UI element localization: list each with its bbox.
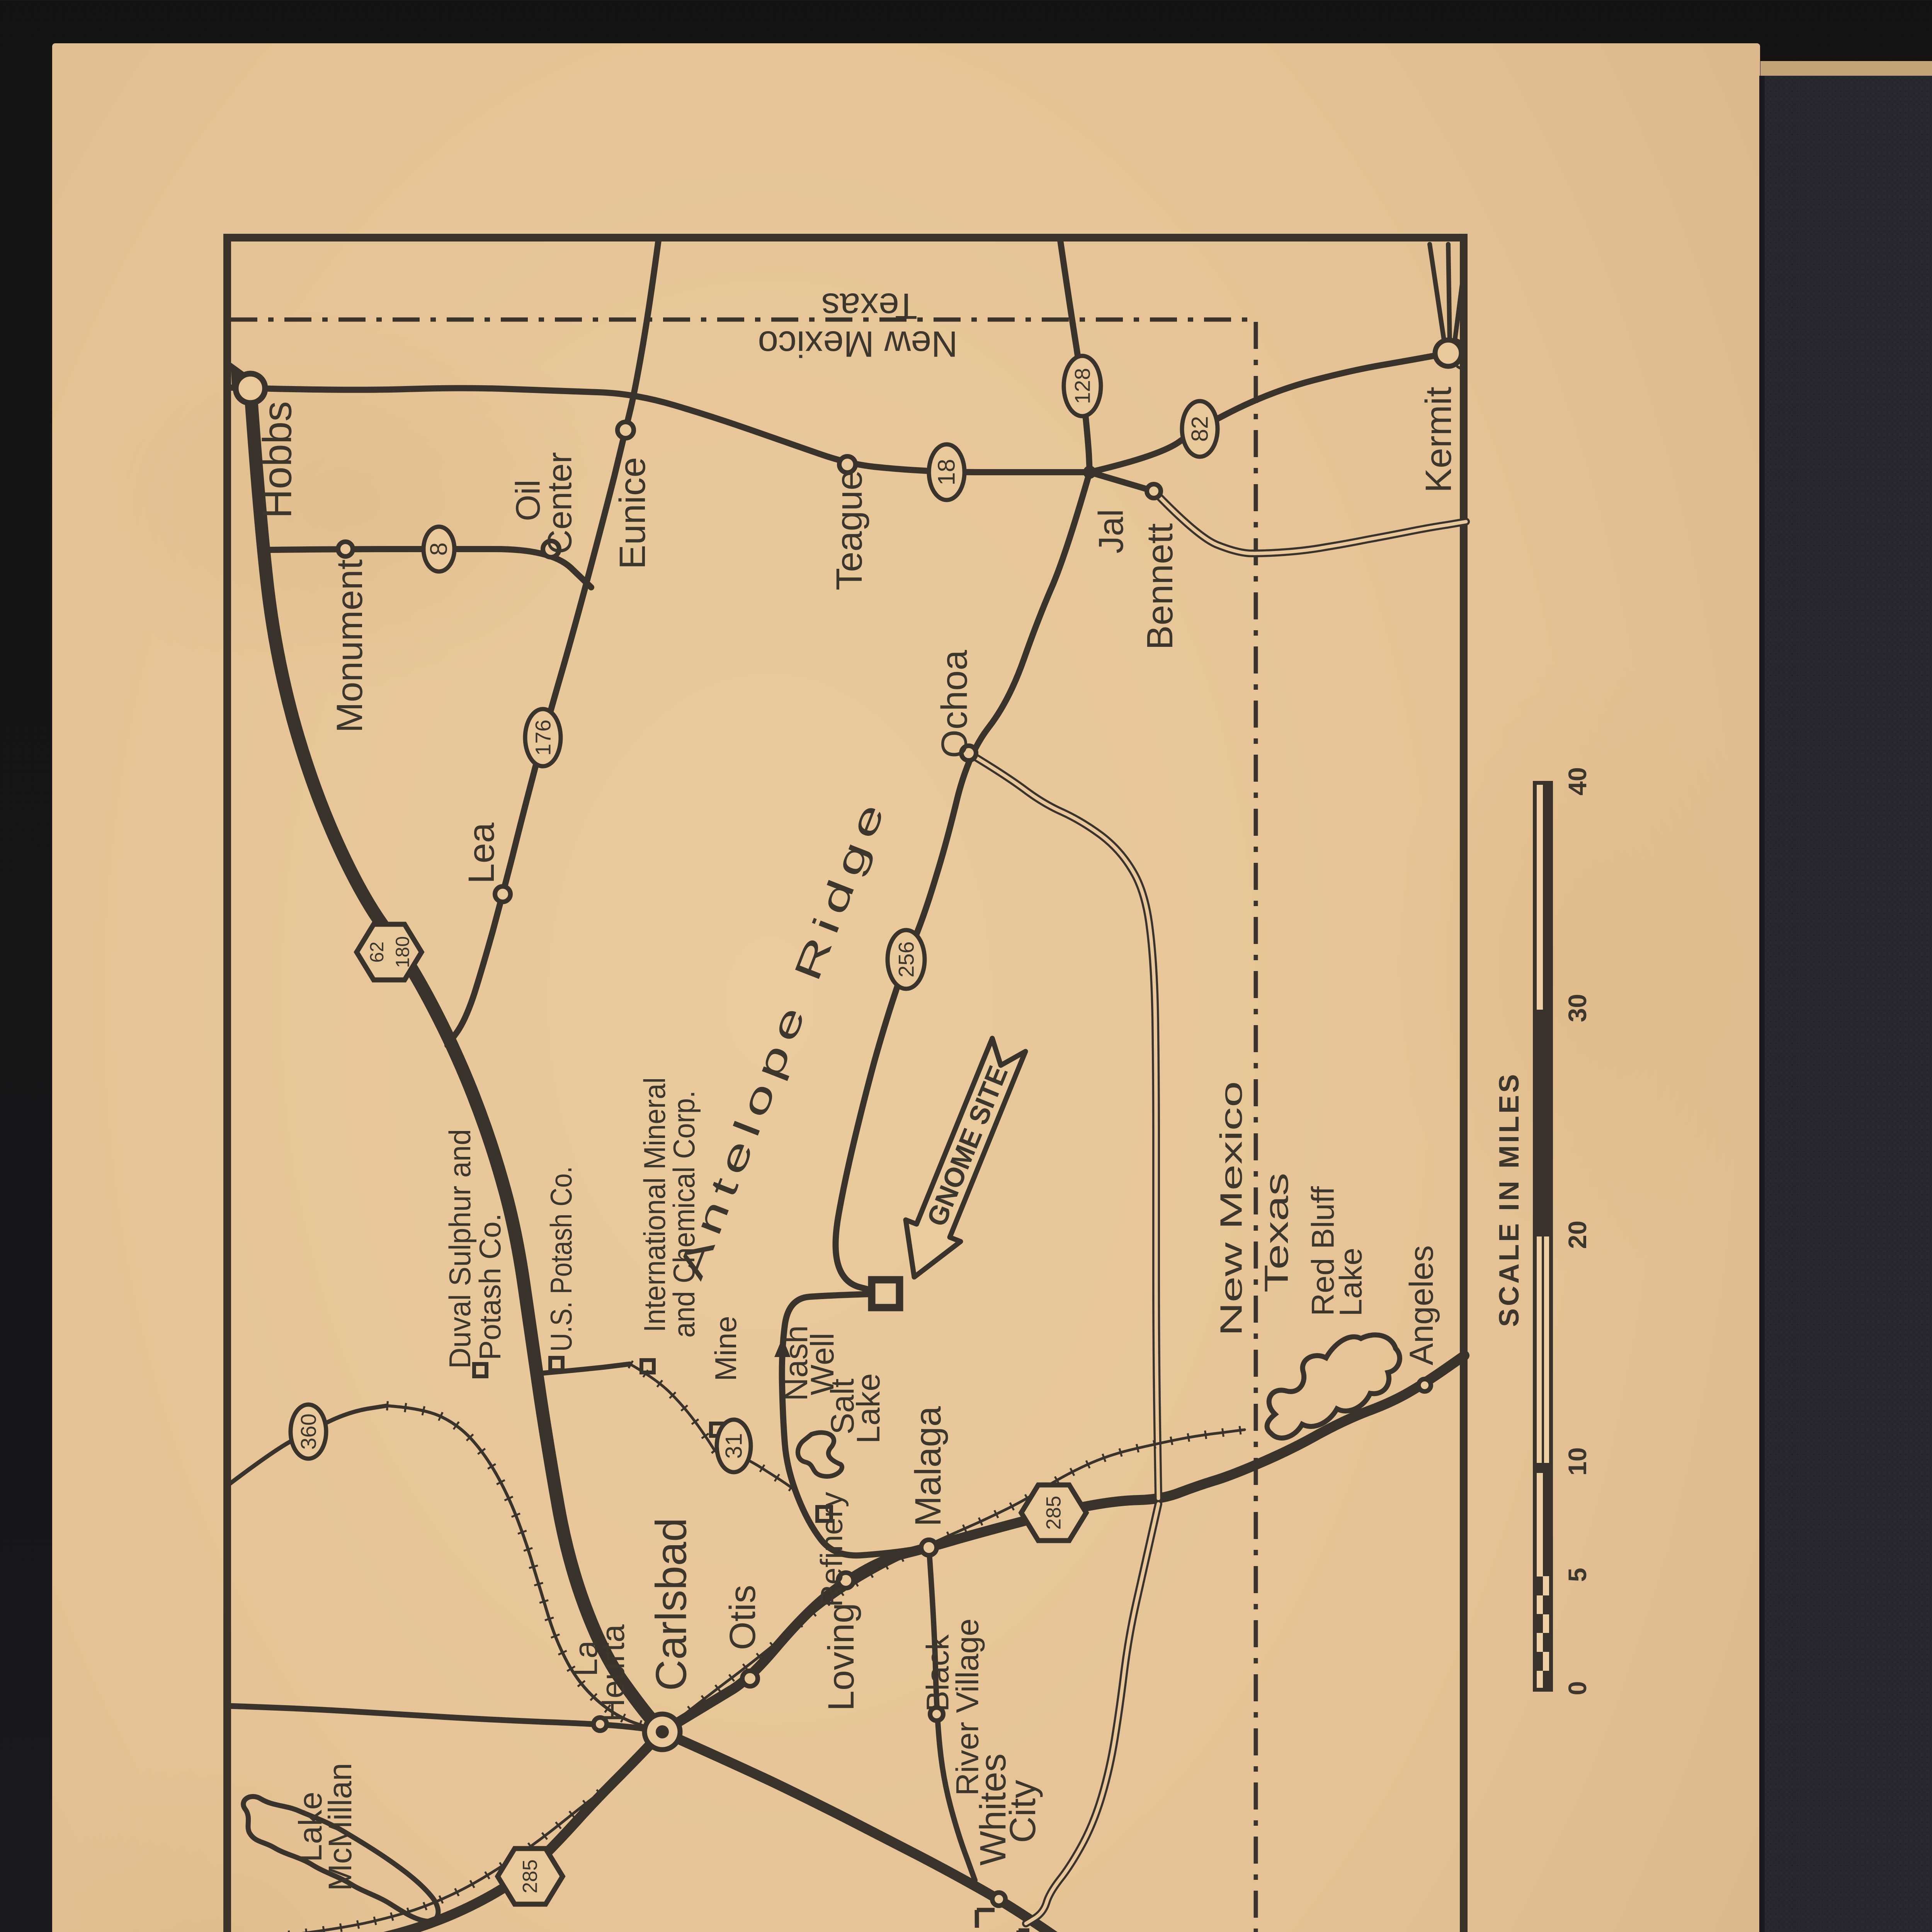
svg-text:Bennett: Bennett xyxy=(1139,523,1180,650)
svg-text:Hobbs: Hobbs xyxy=(255,401,300,519)
svg-text:Angeles: Angeles xyxy=(1403,1245,1440,1366)
svg-text:Carlsbad: Carlsbad xyxy=(647,1518,696,1691)
svg-text:New Mexico: New Mexico xyxy=(1214,1081,1248,1336)
svg-text:Teague: Teague xyxy=(829,470,870,590)
svg-text:Lake: Lake xyxy=(1333,1248,1369,1316)
svg-text:Duval Sulphur and: Duval Sulphur and xyxy=(443,1129,477,1369)
svg-text:180: 180 xyxy=(392,936,413,968)
svg-text:Lea: Lea xyxy=(461,823,502,884)
svg-text:New Mexico: New Mexico xyxy=(758,323,957,364)
svg-text:SCALE IN MILES: SCALE IN MILES xyxy=(1494,1072,1525,1327)
svg-text:McMillan: McMillan xyxy=(322,1763,358,1891)
svg-text:256: 256 xyxy=(894,941,918,977)
svg-text:128: 128 xyxy=(1070,368,1095,404)
svg-text:Refinery: Refinery xyxy=(815,1492,849,1607)
svg-text:Heurta: Heurta xyxy=(595,1624,631,1722)
svg-text:30: 30 xyxy=(1563,994,1592,1022)
svg-text:5: 5 xyxy=(1563,1568,1592,1582)
svg-text:Otis: Otis xyxy=(722,1585,763,1650)
svg-text:Lake: Lake xyxy=(850,1373,886,1444)
svg-text:20: 20 xyxy=(1563,1221,1592,1249)
svg-text:360: 360 xyxy=(296,1413,321,1449)
svg-text:10: 10 xyxy=(1563,1447,1592,1476)
svg-text:Potash Co.: Potash Co. xyxy=(473,1213,507,1360)
svg-text:40: 40 xyxy=(1563,767,1592,795)
svg-text:Jal: Jal xyxy=(1092,509,1131,553)
svg-text:Loving: Loving xyxy=(821,1603,862,1711)
svg-text:285: 285 xyxy=(1043,1496,1065,1530)
svg-text:Center: Center xyxy=(541,452,579,554)
svg-text:62: 62 xyxy=(366,942,388,963)
svg-text:285: 285 xyxy=(519,1859,542,1893)
svg-text:Eunice: Eunice xyxy=(612,457,653,569)
svg-text:31: 31 xyxy=(721,1433,747,1459)
svg-text:City: City xyxy=(1002,1780,1043,1843)
svg-text:Malaga: Malaga xyxy=(908,1406,949,1527)
svg-text:Mine: Mine xyxy=(709,1316,743,1381)
svg-text:8: 8 xyxy=(426,543,452,556)
svg-text:82: 82 xyxy=(1187,416,1213,442)
svg-text:U.S. Potash Co.: U.S. Potash Co. xyxy=(544,1166,578,1352)
svg-text:18: 18 xyxy=(934,459,960,486)
svg-text:Ochoa: Ochoa xyxy=(934,650,975,758)
svg-text:Monument: Monument xyxy=(329,560,370,733)
svg-text:176: 176 xyxy=(531,719,555,755)
svg-text:Kermit: Kermit xyxy=(1418,387,1459,493)
svg-text:Texas: Texas xyxy=(1258,1173,1295,1293)
svg-text:International Mineral: International Mineral xyxy=(638,1077,672,1332)
svg-text:Texas: Texas xyxy=(821,286,917,327)
svg-text:0: 0 xyxy=(1563,1681,1592,1696)
